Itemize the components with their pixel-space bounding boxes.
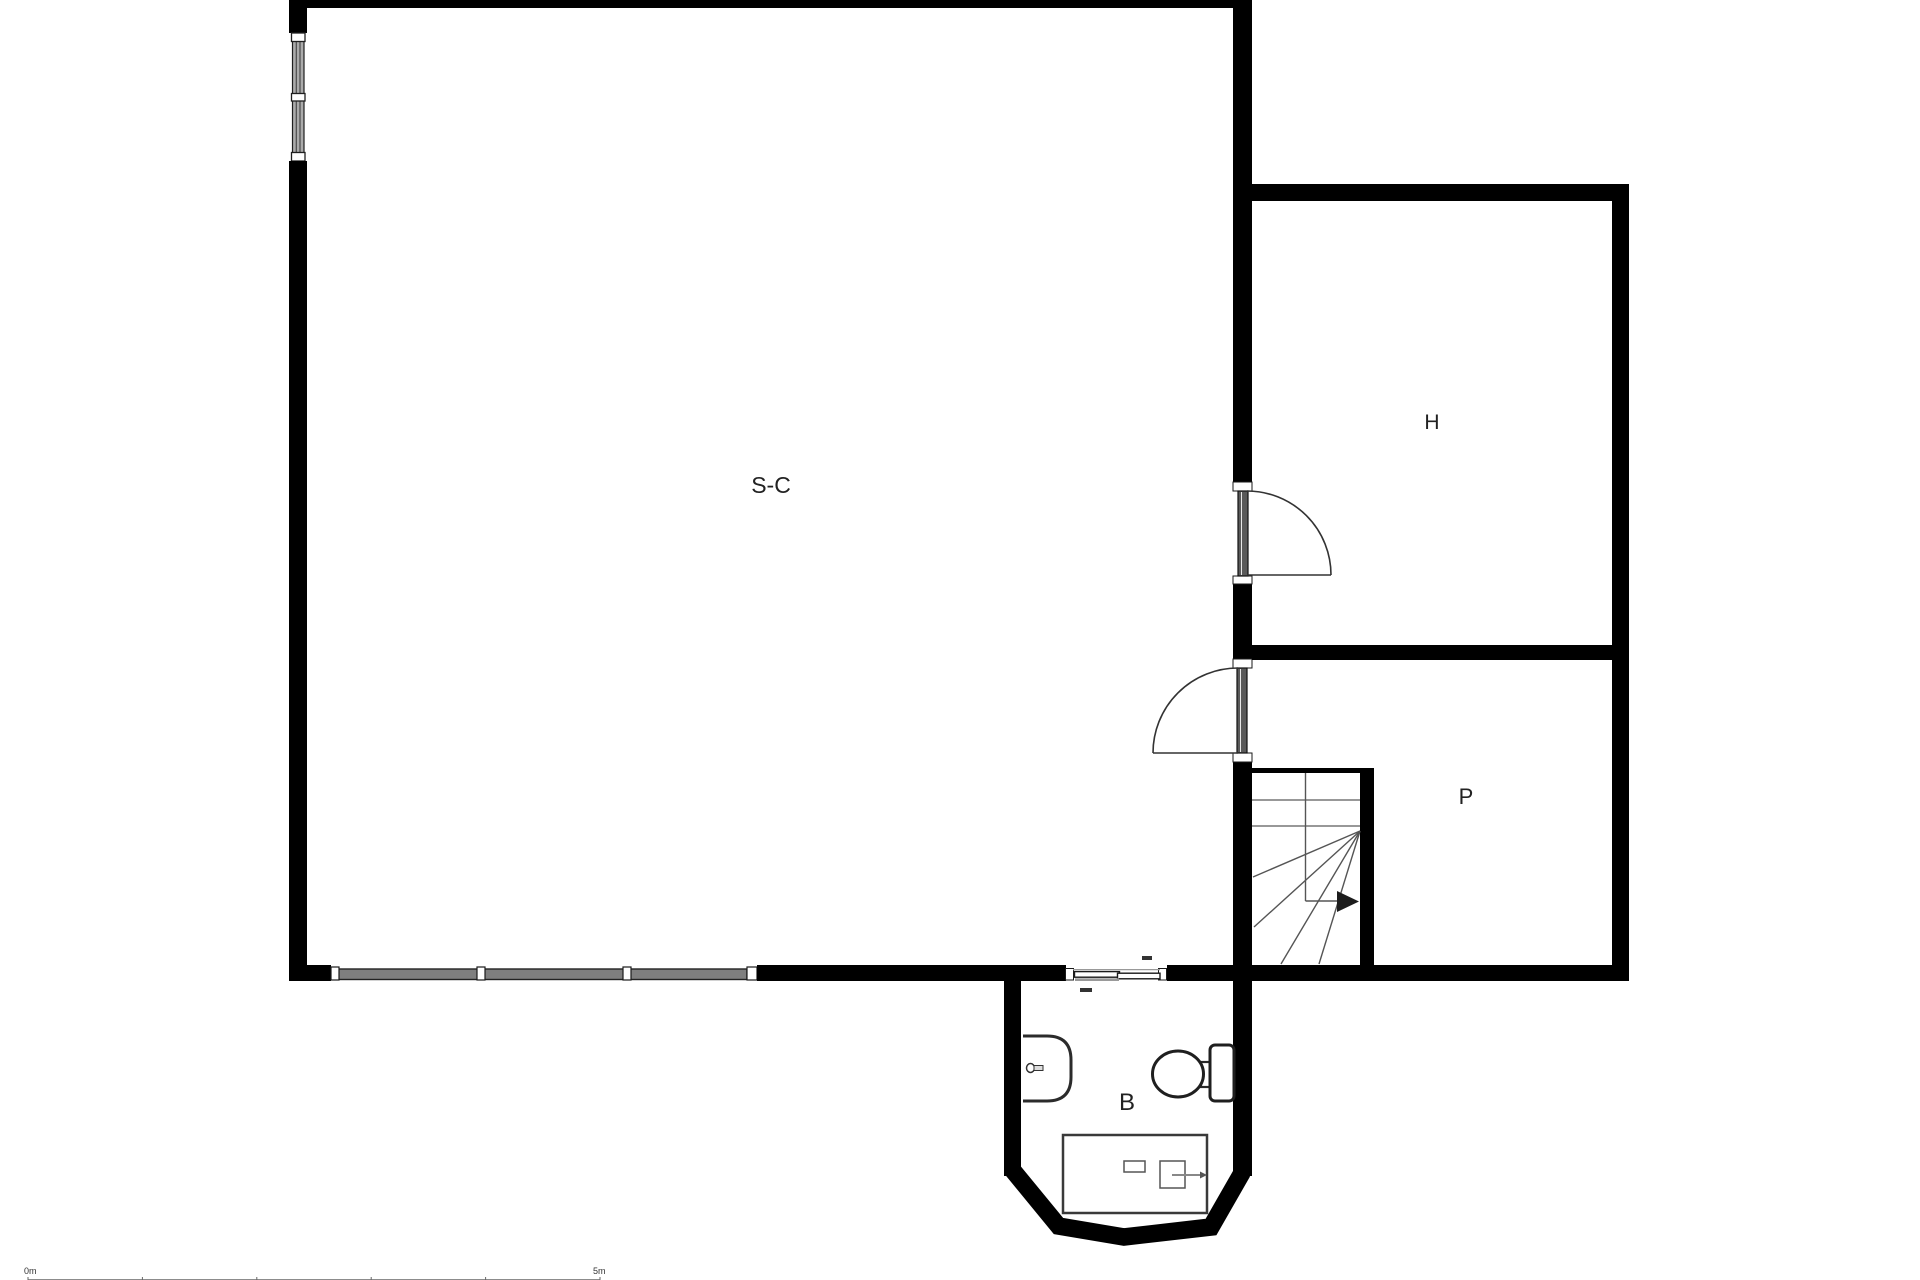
svg-text:0m: 0m [24, 1266, 37, 1276]
svg-text:5m: 5m [593, 1266, 606, 1276]
svg-text:P: P [1459, 784, 1474, 809]
svg-text:H: H [1424, 411, 1439, 434]
svg-text:S-C: S-C [751, 472, 791, 498]
svg-text:B: B [1119, 1089, 1135, 1116]
